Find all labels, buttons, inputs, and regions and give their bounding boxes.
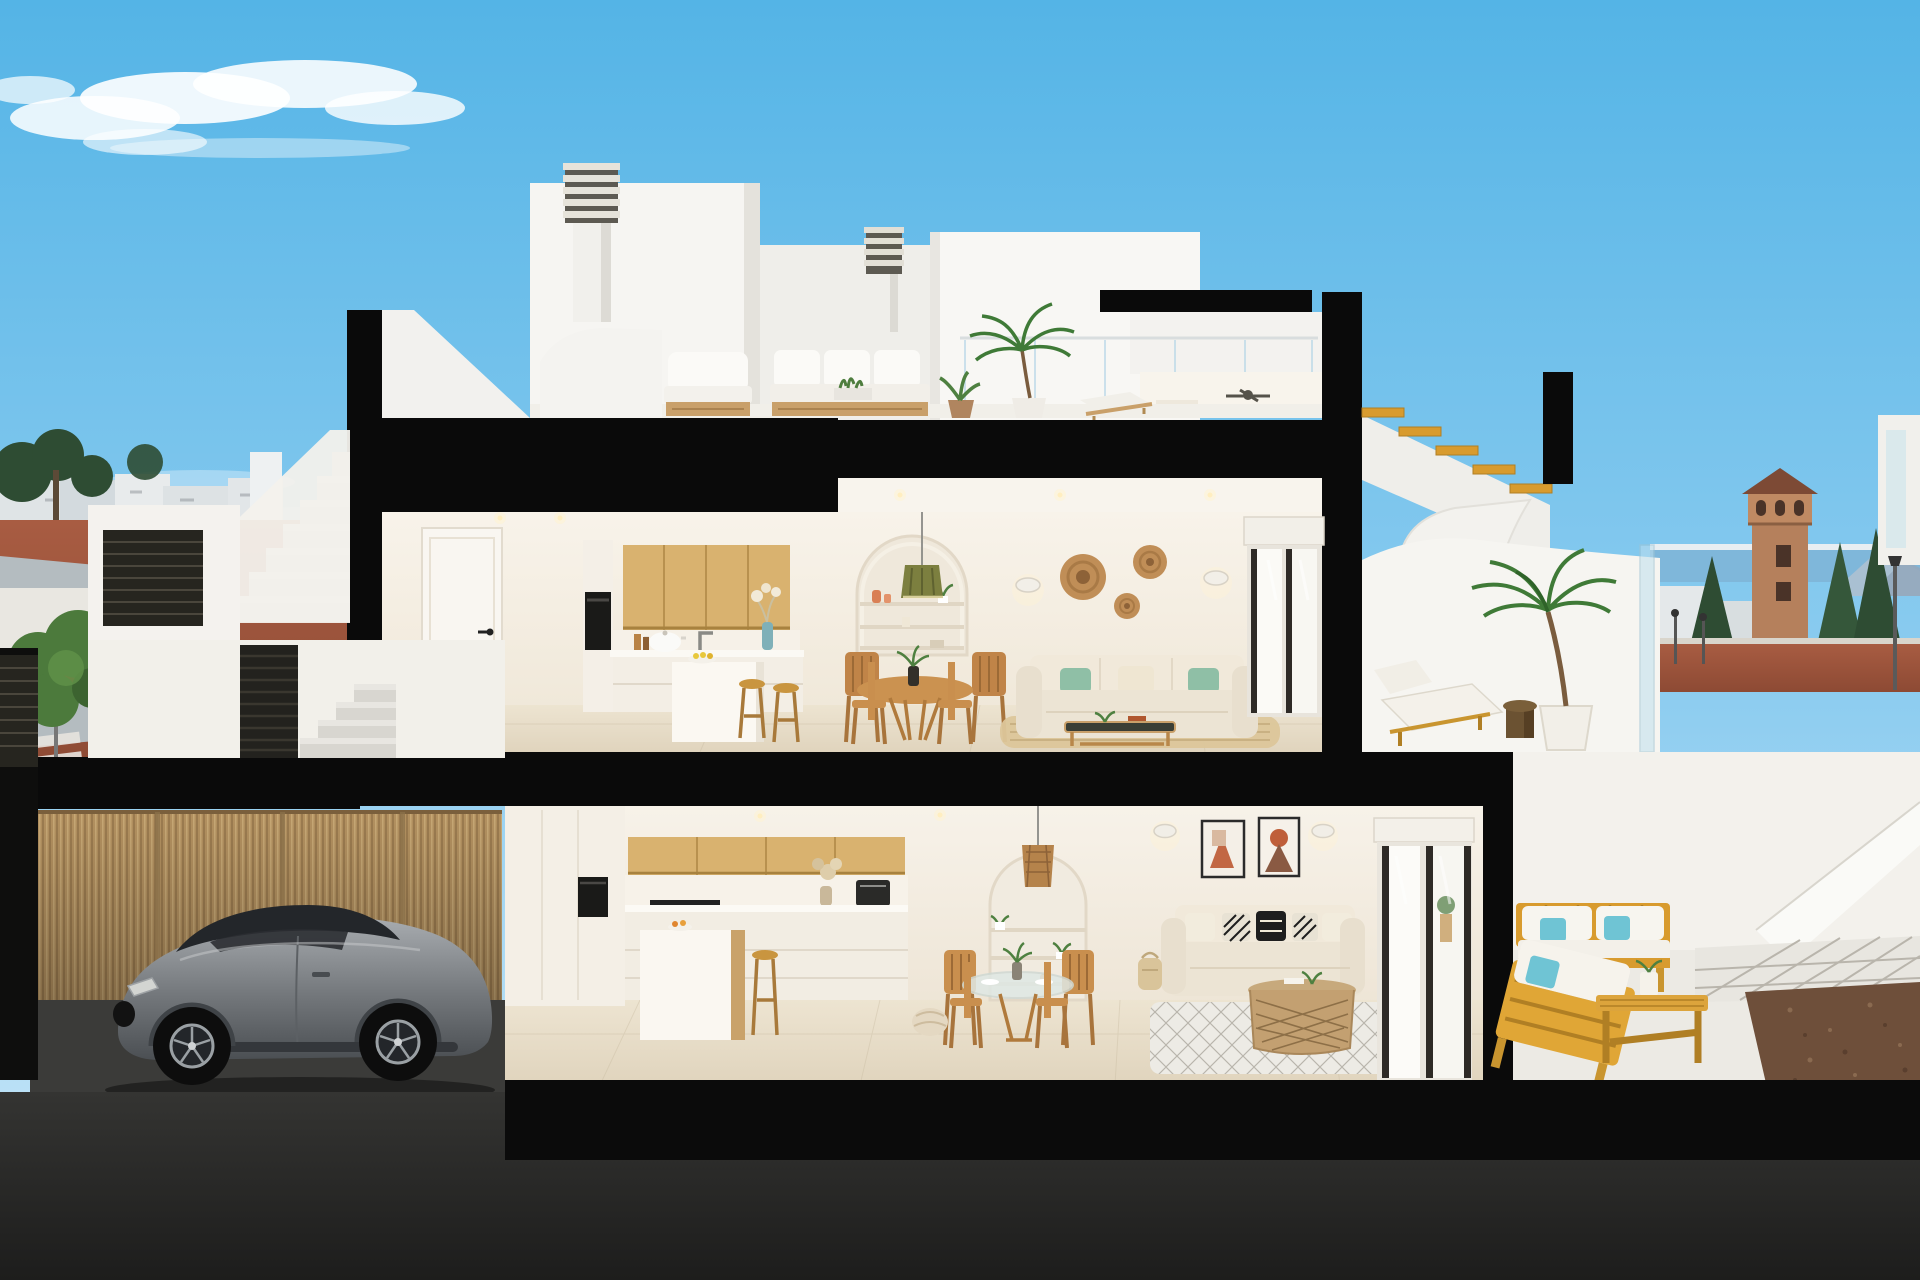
red-sidewalk-right: [1650, 644, 1920, 692]
car-grille: [113, 1001, 135, 1027]
upper-ceiling-cove: [838, 478, 1322, 512]
car-front-wheel: [153, 1007, 231, 1085]
left-louver-block: [0, 655, 38, 767]
cream-cushion: [1118, 666, 1154, 693]
cut-roof-slab-living: [838, 420, 1322, 478]
carport: [30, 810, 505, 1103]
car-rear-wheel: [359, 1003, 437, 1081]
watchtower: [1742, 468, 1818, 662]
sidewalk-curb: [1650, 638, 1920, 645]
cut-bottom-slab: [505, 1080, 1920, 1160]
terrace-curved-wall: [540, 328, 662, 418]
street-lamp-post: [1893, 565, 1897, 690]
black-pillow-center: [1256, 911, 1286, 941]
upper-floor-interior: [382, 478, 1324, 752]
white-pillow-left: [1185, 913, 1215, 941]
round-side-table: [1503, 700, 1537, 738]
cut-party-wall-upper: [1322, 292, 1362, 758]
dark-louver-gate: [240, 645, 298, 758]
cut-mid-slab: [347, 752, 1322, 806]
louver-panel: [103, 530, 203, 626]
green-cushion-left: [1060, 668, 1091, 693]
roof-armchair: [664, 352, 752, 416]
rattan-coffee-table: [1248, 972, 1356, 1054]
lower-sconce-right: [1308, 821, 1338, 851]
lower-floor-interior: [505, 806, 1483, 1085]
gravel-bed: [1745, 982, 1920, 1092]
render-stage: [0, 0, 1920, 1280]
woven-pouf: [912, 1008, 948, 1036]
lower-sliding-door: [1374, 818, 1474, 1082]
teal-pillow-2: [1604, 916, 1630, 940]
lower-sconce-left: [1150, 821, 1180, 851]
lower-countertop: [625, 905, 908, 912]
roller-blind-box: [1244, 517, 1324, 545]
teal-pillow-1: [1540, 918, 1566, 942]
roof-volume-c-shade: [930, 232, 940, 420]
fence-cap: [30, 810, 502, 814]
lower-roller-blind: [1374, 818, 1474, 842]
roof-cap-slab: [1100, 290, 1312, 312]
kitchen-island: [672, 652, 764, 742]
roof-parapet-band: [1130, 312, 1322, 374]
patterned-pillow-left: [1222, 913, 1250, 941]
stair-cut-edge: [1543, 372, 1573, 484]
cut-roof-slab-kitchen: [382, 418, 838, 512]
wall-sconce-left: [1012, 574, 1044, 606]
cut-mid-slab-left: [30, 757, 360, 809]
car-door-handle: [312, 972, 330, 977]
lower-island: [640, 920, 745, 1040]
wall-sconce-right: [1200, 567, 1232, 599]
green-cushion-right: [1188, 668, 1219, 693]
scene-render: [0, 0, 1920, 1280]
upper-sliding-door: [1244, 517, 1324, 717]
glass-balustrade: [1640, 545, 1654, 752]
coffee-machine: [856, 880, 890, 906]
patterned-pillow-right: [1292, 913, 1318, 941]
